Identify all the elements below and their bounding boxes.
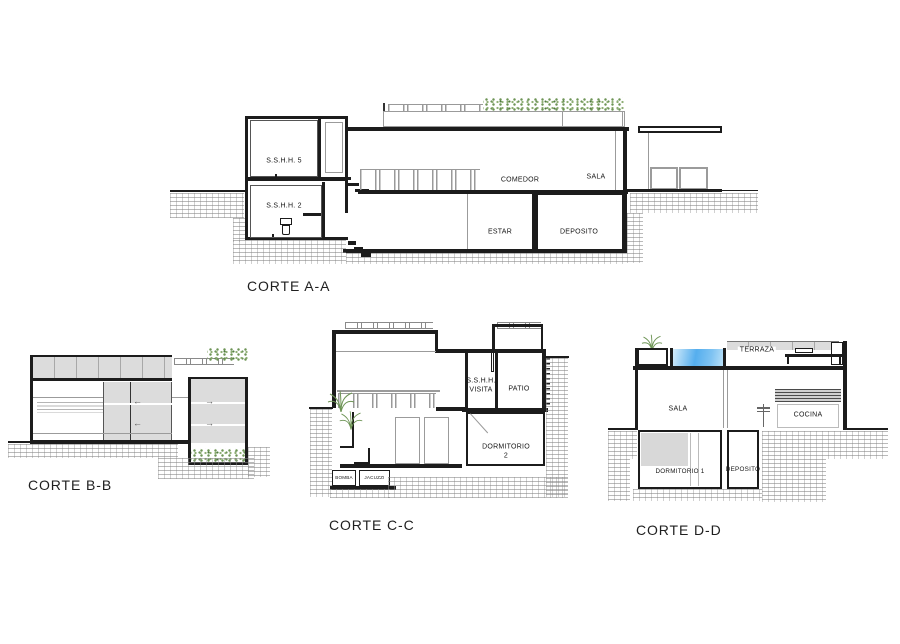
- ground-hatch-left-col: [233, 218, 245, 242]
- plant-sprig-icon: [338, 410, 364, 430]
- tower-top-slab: [245, 116, 348, 119]
- terrace-furniture-2: [679, 167, 708, 190]
- cc-roof-step-wall: [435, 330, 438, 351]
- dd-dorm-divider-1: [690, 433, 691, 486]
- stair-step-1: [342, 177, 351, 180]
- bb-clerestory-band: [33, 357, 172, 378]
- ground-line-right: [722, 190, 758, 191]
- dd-hatch-right-col: [762, 459, 826, 502]
- roof-planter-box: [562, 111, 623, 127]
- cc-roof-slab-low: [435, 349, 545, 353]
- deposito-room: [536, 193, 624, 252]
- dormitorio2-line2: 2: [504, 452, 508, 459]
- cc-floor-slab: [340, 464, 462, 468]
- cc-terrace-step-2: [354, 448, 370, 464]
- dd-dorm-divider-2: [698, 433, 699, 486]
- dd-pool: [673, 349, 723, 366]
- cc-door-leaf: [491, 352, 494, 372]
- dd-louver-band: [775, 389, 841, 402]
- dd-pool-wall-left: [670, 348, 673, 366]
- stair-step-2: [348, 183, 359, 186]
- estar-divider-line: [467, 194, 468, 250]
- room-label-dd-deposito: DEPOSITO: [726, 466, 760, 474]
- green-roof-vegetation: [483, 97, 625, 112]
- door-stop-upper: [275, 174, 277, 177]
- cc-tower-wall-left: [492, 324, 495, 350]
- bb-block-line-1: [191, 402, 245, 404]
- ground-hatch-right-col: [627, 213, 643, 263]
- cc-tower-top: [492, 324, 543, 327]
- architectural-sections-sheet: S.S.H.H. 5 S.S.H.H. 2 COMEDOR SALA ESTAR…: [0, 0, 900, 644]
- dd-pool-wall-right: [723, 348, 726, 366]
- room-label-dormitorio2: DORMITORIO 2: [482, 443, 530, 461]
- room-label-sala: SALA: [587, 174, 606, 183]
- room-label-deposito: DEPOSITO: [560, 229, 598, 238]
- dd-bed: [641, 433, 688, 466]
- dd-terrace-item: [795, 348, 813, 353]
- sshh-visita-line1: S.S.H.H.: [466, 377, 495, 384]
- dd-counter-top: [785, 354, 843, 357]
- dd-hatch-right: [762, 431, 888, 459]
- right-column: [648, 133, 649, 190]
- bb-block-line-2: [191, 424, 245, 426]
- dd-ground-line-right: [846, 428, 888, 430]
- bb-ground-line-left: [8, 441, 32, 443]
- dd-planter-box: [637, 348, 668, 366]
- room-label-sshh2: S.S.H.H. 2: [266, 203, 302, 212]
- bb-hatch-right: [248, 447, 270, 477]
- title-corte-aa: CORTE A-A: [247, 278, 330, 294]
- dd-hatch-bottom: [633, 489, 762, 501]
- ground-line-left: [170, 190, 247, 192]
- tower-mid-slab: [245, 177, 348, 181]
- faucet-crossbar-1: [757, 407, 770, 409]
- cc-hatch-left: [310, 409, 332, 497]
- shaft-door-panel: [325, 122, 343, 173]
- title-corte-bb: CORTE B-B: [28, 477, 112, 493]
- bb-block-panels: [191, 379, 245, 443]
- main-roof-slab: [348, 127, 629, 131]
- ground-slab-right: [625, 189, 722, 192]
- roof-railing-panels: [388, 104, 483, 111]
- room-label-comedor: COMEDOR: [501, 177, 539, 186]
- bb-roof-plants: [207, 347, 250, 361]
- room-label-jacuzzi: JACUZZI: [364, 475, 384, 481]
- cc-ceiling-line: [336, 351, 436, 352]
- dd-deposito-room: [727, 430, 759, 489]
- toilet-tank: [280, 218, 292, 225]
- dd-hatch-left-col: [608, 459, 630, 501]
- slide-arrow-right-2: →: [205, 419, 214, 428]
- room-label-dd-sala: SALA: [669, 406, 688, 415]
- dd-counter-leg-right: [839, 356, 841, 364]
- cc-hatch-bottom-left: [330, 489, 390, 498]
- sshh5-room-outline: [250, 120, 318, 177]
- door-stop-lower: [272, 234, 274, 237]
- room-label-patio: PATIO: [508, 386, 529, 395]
- ground-hatch-bottom-left: [233, 240, 346, 264]
- dd-terrace-floor-slab: [633, 366, 846, 370]
- cc-tower-wall-right: [541, 324, 544, 350]
- title-corte-dd: CORTE D-D: [636, 522, 722, 538]
- ground-hatch-bottom: [346, 253, 627, 264]
- room-label-cocina: COCINA: [794, 412, 823, 421]
- room-label-sshh-visita: S.S.H.H. VISITA: [466, 377, 495, 395]
- stair-railing-panels: [360, 169, 480, 190]
- sshh2-wall-right: [322, 182, 325, 240]
- toilet-bowl: [282, 225, 290, 235]
- dd-sala-column-2: [727, 370, 728, 428]
- bb-slab-upper: [30, 378, 172, 381]
- detached-roof-slab: [638, 126, 722, 133]
- dd-wall-right: [843, 341, 847, 430]
- bb-stair-lines: [37, 402, 103, 413]
- bb-panel-line-2: [33, 433, 172, 434]
- room-label-estar: ESTAR: [488, 229, 512, 238]
- room-label-terraza: TERRAZA: [738, 347, 776, 356]
- dd-hatch-left: [608, 431, 637, 459]
- room-label-dormitorio1: DORMITORIO 1: [655, 468, 704, 476]
- tower-inner-wall: [318, 118, 321, 178]
- bb-hatch-left: [8, 444, 178, 458]
- terrace-furniture-1: [650, 167, 678, 190]
- dd-wall-left: [635, 348, 638, 430]
- room-label-bomba: BOMBA: [335, 475, 353, 481]
- ground-hatch-left: [170, 193, 244, 218]
- cc-lower-door-2: [424, 417, 449, 464]
- ground-hatch-right: [630, 193, 758, 213]
- bb-hatch-mid: [158, 458, 254, 479]
- cc-roof-slab-high: [332, 330, 438, 334]
- hatch-step-2: [354, 247, 363, 251]
- dd-ground-line-left: [608, 428, 638, 430]
- title-corte-cc: CORTE C-C: [329, 517, 415, 533]
- cc-lower-door-1: [395, 417, 420, 464]
- cc-parapet-ticks-left: [345, 322, 433, 329]
- slide-arrow-right-1: →: [205, 397, 214, 406]
- dormitorio2-line1: DORMITORIO: [482, 443, 530, 450]
- dd-counter-leg-left: [787, 356, 789, 364]
- bb-floor-slab: [30, 440, 188, 444]
- room-label-sshh5: S.S.H.H. 5: [266, 158, 302, 167]
- hatch-step-3: [361, 253, 371, 257]
- faucet-crossbar-2: [757, 411, 770, 412]
- sala-column: [615, 131, 616, 190]
- hatch-step-1: [348, 241, 356, 245]
- cc-hatch-bottom: [388, 477, 568, 498]
- dd-sala-column-1: [723, 370, 724, 428]
- slide-arrow-left-2: ←: [133, 419, 142, 428]
- sshh-visita-line2: VISITA: [469, 386, 492, 393]
- slide-arrow-left-1: ←: [133, 397, 142, 406]
